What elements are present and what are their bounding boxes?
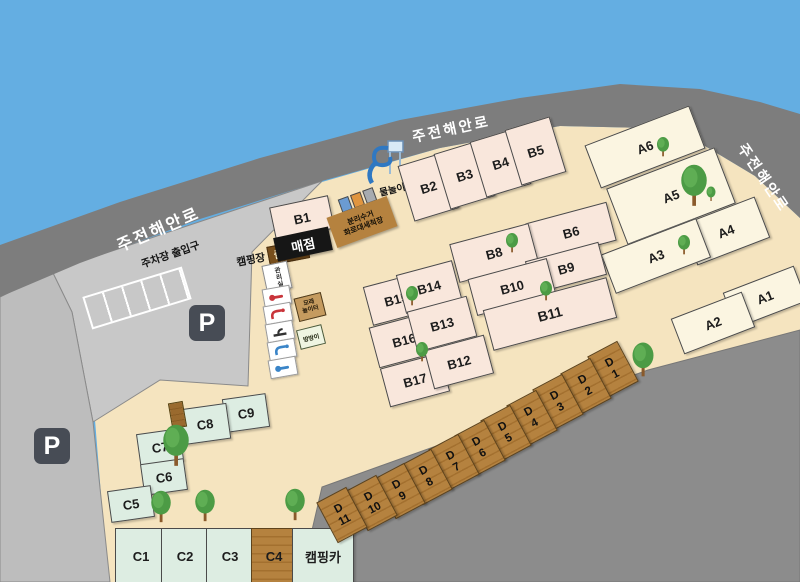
site-c1[interactable]: C1 <box>115 528 167 582</box>
site-c3[interactable]: C3 <box>206 528 254 582</box>
tree-icon <box>538 280 554 307</box>
site-c4[interactable]: C4 <box>251 528 297 582</box>
tree-icon <box>404 285 420 312</box>
tree-icon <box>676 234 692 261</box>
tree-icon <box>148 489 174 530</box>
tree-icon <box>629 340 657 385</box>
parking-icon: P <box>34 428 70 464</box>
tree-icon <box>504 232 520 259</box>
tree-icon <box>282 487 308 528</box>
tree-icon <box>414 341 430 368</box>
parking-icon: P <box>189 305 225 341</box>
tree-icon <box>705 186 717 207</box>
campground-map: 주전해안로 주전해안로 주전해안로 주차장 출입구 캠핑장 출입구 P P B1… <box>0 0 800 582</box>
tree-icon <box>159 423 193 474</box>
tree-icon <box>192 488 218 529</box>
tree-icon <box>655 136 671 163</box>
site-c2[interactable]: C2 <box>161 528 209 582</box>
